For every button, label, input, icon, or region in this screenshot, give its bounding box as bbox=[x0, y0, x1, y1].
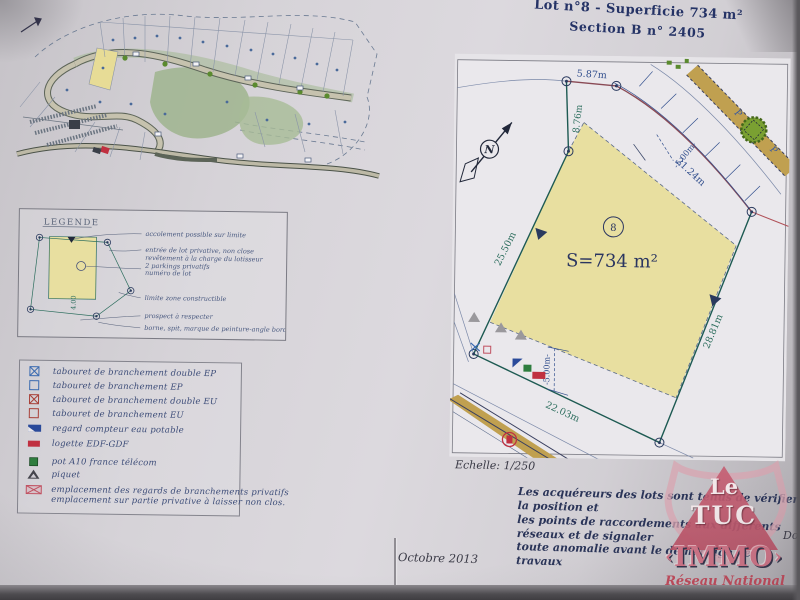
dim-setback-bottom: -5.00m- bbox=[542, 354, 551, 385]
legend-item: pot A10 france télécom bbox=[26, 456, 157, 469]
legend-item-label: tabouret de branchement double EU bbox=[52, 394, 217, 406]
legende-label: prospect à respecter bbox=[144, 312, 213, 321]
legend-item: piquet bbox=[25, 469, 80, 481]
photographed-document: Lot n°8 - Superficie 734 m² Section B n°… bbox=[0, 0, 800, 600]
map-building bbox=[69, 120, 80, 129]
legend-item-label: piquet bbox=[51, 469, 80, 479]
logo-arrow-left: ‹ bbox=[665, 544, 674, 568]
lot-plan: -5.00m- -5.00m- 5.87m bbox=[449, 54, 791, 462]
paper-fold-line bbox=[394, 538, 396, 585]
map-north-arrow-icon bbox=[21, 18, 41, 32]
legend-item: tabouret de branchement double EP bbox=[27, 366, 216, 380]
legend-item: logette EDF-GDF bbox=[26, 438, 129, 450]
logo-text-tuc: TUC bbox=[648, 501, 800, 530]
water-meter-icon bbox=[26, 423, 43, 434]
logo-text-le: Le bbox=[648, 474, 800, 499]
legende-diagram: LEGENDE 4.00 bbox=[18, 209, 287, 339]
diagram-dimension: 4.00 bbox=[69, 295, 77, 310]
logo-immo-word: IMMO bbox=[674, 542, 774, 573]
letuc-immo-logo: Le TUC ‹IMMO› Réseau National bbox=[648, 460, 800, 586]
edf-gdf-box-icon bbox=[26, 438, 43, 449]
logo-text-immo: ‹IMMO› bbox=[648, 542, 800, 573]
square-x-blue-icon bbox=[27, 366, 44, 377]
legende-label: accolement possible sur limite bbox=[146, 230, 247, 239]
table-surface-right bbox=[792, 0, 800, 600]
paper-corner-shadow bbox=[660, 0, 800, 52]
legend-item: emplacement sur partie privative à laiss… bbox=[51, 495, 285, 508]
square-x-red-icon bbox=[26, 394, 43, 405]
stake-icon bbox=[25, 469, 42, 480]
square-blue-icon bbox=[27, 380, 44, 391]
scale-label: Echelle: 1/250 bbox=[455, 458, 535, 472]
legende-box: LEGENDE 4.00 bbox=[17, 208, 288, 341]
legend-item: tabouret de branchement EU bbox=[26, 408, 184, 421]
north-letter: N bbox=[483, 143, 495, 156]
green-areas bbox=[75, 53, 353, 145]
legend-item: tabouret de branchement double EU bbox=[26, 394, 217, 408]
subdivision-overview-map bbox=[5, 2, 387, 198]
hatched-box-icon bbox=[25, 484, 42, 495]
table-surface-bottom bbox=[0, 585, 800, 600]
legend-item-label: regard compteur eau potable bbox=[52, 423, 184, 435]
symbols-legend-box: tabouret de branchement double EP tabour… bbox=[17, 359, 242, 516]
legend-item-label: tabouret de branchement EU bbox=[52, 408, 184, 420]
area-label: S=734 m² bbox=[566, 250, 658, 272]
legend-item-label: tabouret de branchement EP bbox=[53, 380, 183, 392]
dim-top: 5.87m bbox=[576, 68, 607, 81]
legende-label: numéro de lot bbox=[145, 269, 192, 278]
telecom-pot-icon bbox=[26, 456, 43, 467]
lot-number: 8 bbox=[610, 223, 617, 234]
legend-item-label: pot A10 france télécom bbox=[52, 456, 157, 467]
legend-item: regard compteur eau potable bbox=[26, 423, 184, 436]
square-red-icon bbox=[26, 408, 43, 419]
legend-item-label: logette EDF-GDF bbox=[52, 438, 129, 449]
legend-item: tabouret de branchement EP bbox=[27, 380, 183, 393]
legende-label: borne, spit, marque de peinture-angle bo… bbox=[144, 324, 287, 335]
document-date: Octobre 2013 bbox=[398, 550, 478, 566]
legende-label: limite zone constructible bbox=[145, 294, 227, 303]
logo-arrow-right: › bbox=[774, 544, 783, 568]
legend-item-label: emplacement sur partie privative à laiss… bbox=[51, 495, 285, 508]
legend-item-label: tabouret de branchement double EP bbox=[53, 366, 216, 378]
